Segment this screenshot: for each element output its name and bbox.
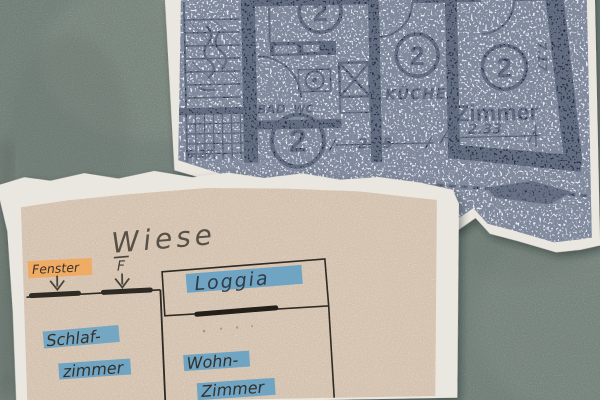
- scene-canvas: 2 2 2 2 BAD WC KÜCHE Zimmer 2.85: [0, 0, 600, 400]
- fenster-label: Fenster: [32, 260, 81, 277]
- wall-thick-segment: [31, 293, 78, 295]
- wohnzimmer-label-line2: Zimmer: [200, 377, 267, 400]
- wall-thick-segment: [103, 290, 150, 292]
- sketch-paper: Wiese Fenster F Loggia: [0, 165, 470, 400]
- f-marker-label: F: [117, 258, 126, 274]
- photo-of-floorplans: 2 2 2 2 BAD WC KÜCHE Zimmer 2.85: [0, 0, 600, 400]
- wohnzimmer-label-line1: Wohn-: [186, 350, 239, 373]
